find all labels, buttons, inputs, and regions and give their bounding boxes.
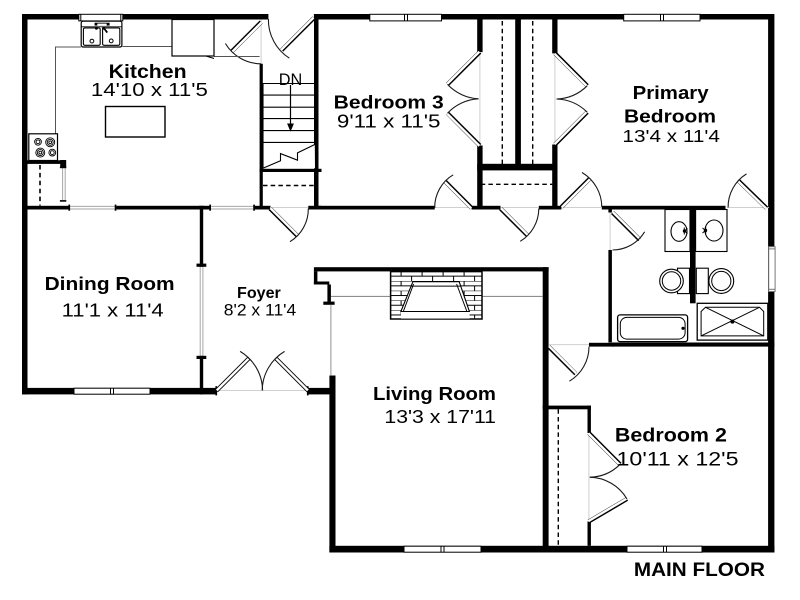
- svg-text:9'11 x 11'5: 9'11 x 11'5: [337, 111, 441, 132]
- svg-text:Primary: Primary: [633, 83, 709, 103]
- svg-text:13'4 x 11'4: 13'4 x 11'4: [622, 126, 720, 146]
- svg-text:8'2 x 11'4: 8'2 x 11'4: [224, 302, 297, 320]
- svg-text:Living Room: Living Room: [373, 384, 496, 404]
- svg-text:Bedroom 3: Bedroom 3: [334, 92, 444, 113]
- svg-text:Dining Room: Dining Room: [45, 273, 175, 294]
- svg-text:14'10 x 11'5: 14'10 x 11'5: [91, 79, 208, 100]
- svg-text:10'11 x 12'5: 10'11 x 12'5: [617, 449, 739, 470]
- svg-text:Bedroom: Bedroom: [624, 106, 716, 126]
- svg-text:MAIN FLOOR: MAIN FLOOR: [634, 560, 765, 581]
- svg-text:DN: DN: [279, 71, 303, 89]
- svg-text:13'3 x 17'11: 13'3 x 17'11: [384, 407, 496, 427]
- svg-text:Foyer: Foyer: [237, 285, 281, 302]
- svg-text:Bedroom 2: Bedroom 2: [615, 426, 727, 447]
- svg-text:11'1 x 11'4: 11'1 x 11'4: [62, 300, 164, 321]
